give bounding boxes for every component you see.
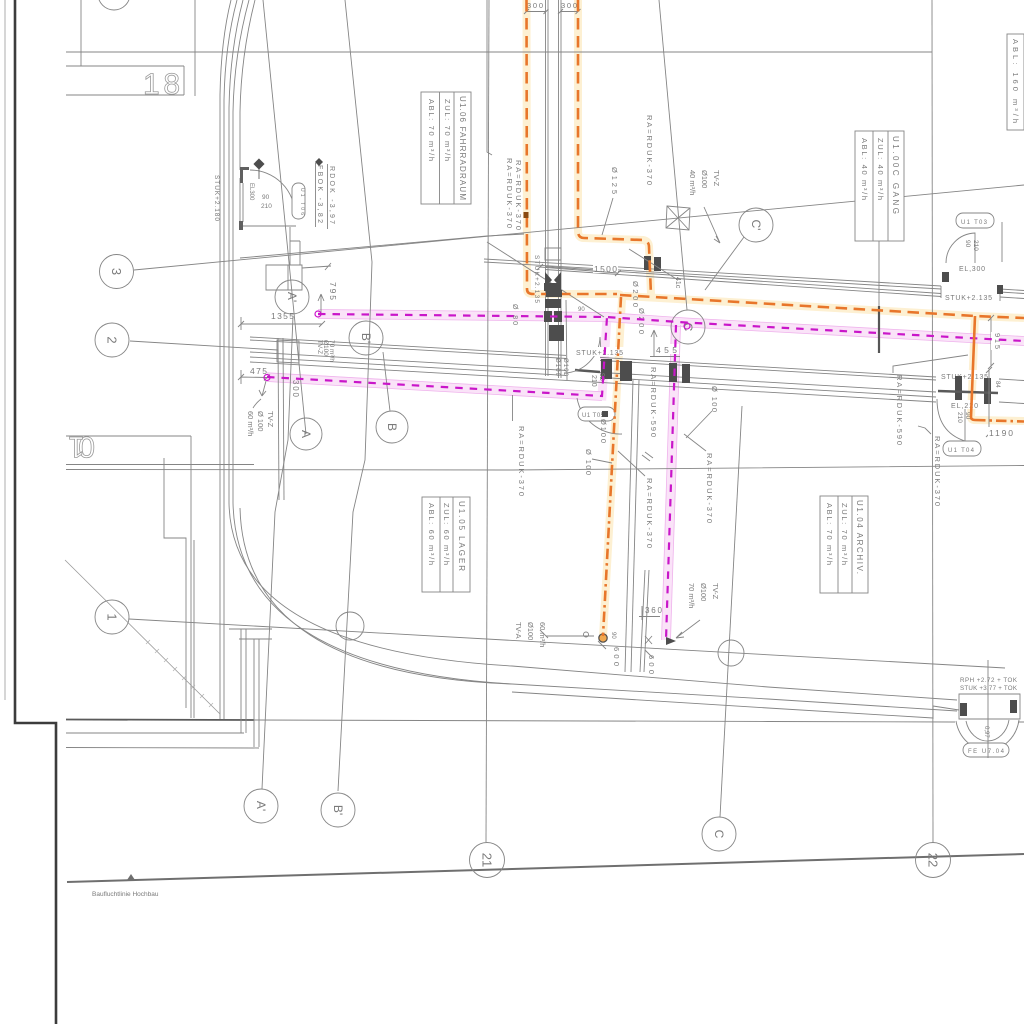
- svg-text:Ø100: Ø100: [699, 583, 708, 601]
- svg-text:1190: 1190: [989, 428, 1013, 438]
- svg-text:STUK+2.180: STUK+2.180: [213, 175, 220, 221]
- svg-text:B: B: [385, 423, 399, 431]
- svg-text:EL300: EL300: [248, 183, 254, 201]
- svg-text:2: 2: [105, 336, 120, 343]
- svg-text:Ø 100: Ø 100: [584, 449, 593, 475]
- svg-text:90: 90: [578, 307, 585, 313]
- svg-text:ABL: 160 m³/h: ABL: 160 m³/h: [1011, 39, 1020, 123]
- svg-text:60 m³/h: 60 m³/h: [246, 411, 255, 436]
- svg-text:A': A': [254, 801, 268, 811]
- svg-text:EL,220: EL,220: [951, 403, 978, 410]
- svg-text:41c: 41c: [674, 277, 681, 289]
- svg-text:Ø 100: Ø 100: [710, 386, 719, 412]
- svg-text:300: 300: [561, 1, 577, 10]
- svg-text:EL,300: EL,300: [959, 266, 985, 273]
- svg-text:RA=RDUK-370: RA=RDUK-370: [645, 478, 654, 548]
- svg-text:U1 T04: U1 T04: [948, 448, 975, 454]
- svg-text:Ø100: Ø100: [322, 340, 329, 356]
- svg-text:RA=RDUK-370: RA=RDUK-370: [514, 160, 523, 230]
- svg-text:84: 84: [994, 381, 1000, 388]
- svg-text:TV-Z: TV-Z: [712, 170, 721, 187]
- svg-text:RA=RDUK-590: RA=RDUK-590: [895, 375, 904, 445]
- svg-text:U1 T03: U1 T03: [961, 220, 988, 226]
- svg-text:C: C: [712, 830, 726, 839]
- svg-text:70 m³/h: 70 m³/h: [687, 583, 696, 608]
- svg-text:TV-Z: TV-Z: [316, 340, 323, 354]
- svg-text:RA=RDUK-370: RA=RDUK-370: [933, 436, 942, 506]
- svg-text:U1.06 FAHRRADRAUM: U1.06 FAHRRADRAUM: [458, 96, 467, 200]
- svg-text:210: 210: [956, 412, 963, 423]
- svg-text:RA=RDUK-370: RA=RDUK-370: [517, 426, 526, 496]
- svg-text:FBOK -3,82: FBOK -3,82: [316, 165, 323, 223]
- svg-text:STUK+2.135: STUK+2.135: [941, 374, 988, 381]
- svg-text:Ø100: Ø100: [526, 622, 535, 640]
- svg-text:915: 915: [993, 333, 1002, 349]
- svg-text:60 m³/h: 60 m³/h: [538, 622, 547, 647]
- svg-text:U1.04 ARCHIV.: U1.04 ARCHIV.: [855, 500, 864, 574]
- svg-text:RA=RDUK-370: RA=RDUK-370: [705, 453, 714, 523]
- svg-text:RDOK -3,97: RDOK -3,97: [328, 166, 335, 224]
- svg-text:600: 600: [647, 655, 656, 674]
- svg-text:RA=RDUK-370: RA=RDUK-370: [645, 115, 654, 185]
- svg-text:40 m³/h: 40 m³/h: [688, 170, 697, 195]
- svg-text:1: 1: [105, 613, 120, 620]
- svg-text:STUK+2.135: STUK+2.135: [945, 295, 992, 302]
- svg-text:360: 360: [645, 606, 663, 615]
- svg-text:Ø100: Ø100: [700, 170, 709, 188]
- svg-text:600: 600: [612, 647, 621, 666]
- svg-text:210: 210: [972, 240, 979, 251]
- svg-text:A: A: [299, 430, 313, 438]
- svg-text:Ø100: Ø100: [554, 358, 560, 377]
- svg-text:Ø 80: Ø 80: [511, 304, 518, 325]
- svg-text:RA=RDUK-370: RA=RDUK-370: [505, 158, 514, 228]
- svg-text:455: 455: [656, 345, 677, 355]
- svg-text:795: 795: [328, 282, 338, 300]
- svg-text:U1.00C GANG: U1.00C GANG: [891, 136, 900, 214]
- svg-text:TV-A: TV-A: [514, 622, 523, 639]
- svg-text:STUK +3.77 + TOK: STUK +3.77 + TOK: [960, 685, 1018, 692]
- svg-text:300: 300: [291, 380, 300, 398]
- svg-text:22: 22: [926, 853, 941, 867]
- svg-text:1355: 1355: [271, 311, 294, 321]
- svg-text:TV-Z: TV-Z: [711, 583, 720, 600]
- svg-text:Ø 100: Ø 100: [256, 411, 265, 431]
- svg-text:STUK+2.135: STUK+2.135: [576, 350, 623, 357]
- svg-text:90: 90: [610, 632, 616, 639]
- svg-text:RPH +2.72 + TOK: RPH +2.72 + TOK: [960, 677, 1018, 684]
- svg-text:TV-Z: TV-Z: [266, 411, 275, 428]
- svg-text:RA=RDUK-590: RA=RDUK-590: [649, 367, 658, 437]
- svg-text:C': C': [749, 220, 763, 231]
- svg-text:U1.05 LAGER: U1.05 LAGER: [457, 501, 466, 571]
- svg-text:210: 210: [590, 375, 597, 387]
- svg-text:90: 90: [964, 240, 971, 248]
- svg-text:STUK+2.135: STUK+2.135: [533, 255, 540, 303]
- svg-text:210: 210: [261, 203, 272, 210]
- svg-text:90: 90: [262, 194, 270, 201]
- svg-text:3: 3: [109, 268, 124, 275]
- svg-text:B': B': [359, 333, 373, 343]
- svg-text:B': B': [331, 805, 345, 815]
- svg-text:A': A': [285, 292, 299, 302]
- svg-text:21: 21: [480, 853, 495, 867]
- svg-text:475: 475: [250, 366, 267, 376]
- svg-text:Ø100: Ø100: [562, 358, 568, 377]
- svg-text:01: 01: [68, 430, 95, 463]
- svg-text:C: C: [681, 323, 695, 332]
- svg-text:300: 300: [527, 1, 543, 10]
- svg-text:70 m³/h: 70 m³/h: [328, 340, 335, 362]
- svg-text:Baufluchtlinie Hochbau: Baufluchtlinie Hochbau: [92, 891, 159, 898]
